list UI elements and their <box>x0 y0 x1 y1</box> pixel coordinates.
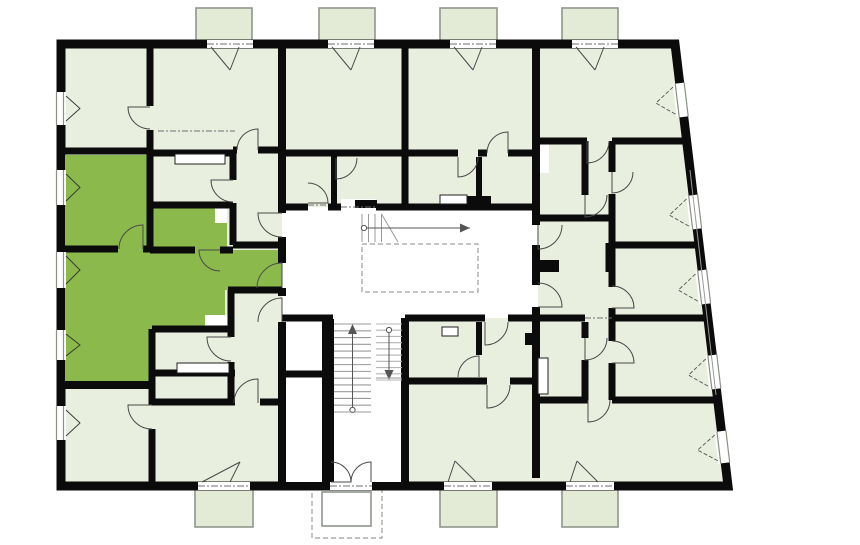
stair-start-circle <box>386 327 391 332</box>
balcony <box>562 486 618 527</box>
fixture <box>442 327 458 336</box>
entrance-canopy <box>312 486 382 538</box>
balcony <box>562 8 618 44</box>
balcony <box>195 486 253 527</box>
fixture <box>177 363 229 373</box>
fixture <box>538 358 548 394</box>
window <box>54 170 66 205</box>
balcony <box>196 8 252 44</box>
balcony <box>440 8 497 44</box>
window <box>54 330 66 360</box>
window <box>54 252 66 288</box>
fixture <box>175 154 225 164</box>
fixture <box>440 195 467 204</box>
ramp-start-circle <box>361 225 366 230</box>
built-in-element <box>467 196 491 204</box>
floor-plan-page <box>0 0 860 545</box>
floor-plan-svg <box>0 0 860 545</box>
window <box>54 92 66 125</box>
wall-notch <box>215 206 227 223</box>
central-corridor <box>282 207 538 318</box>
window <box>54 406 66 440</box>
canopy-slab <box>322 492 371 526</box>
balcony <box>440 486 497 527</box>
built-in-element <box>525 333 534 345</box>
built-in-element <box>533 260 559 272</box>
balcony <box>319 8 375 44</box>
